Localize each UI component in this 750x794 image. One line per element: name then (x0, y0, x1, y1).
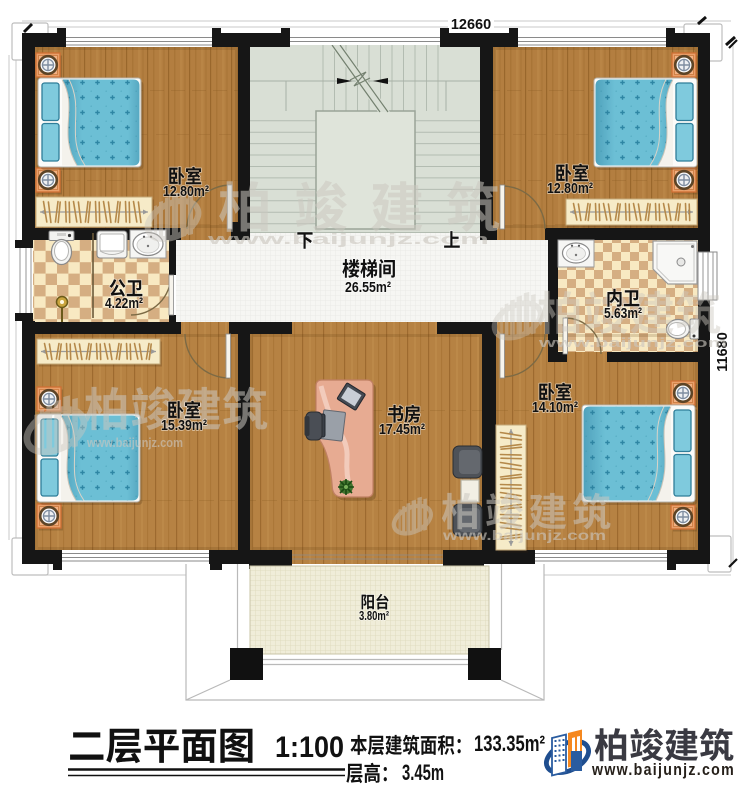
svg-text:15.39m²: 15.39m² (161, 417, 207, 434)
svg-text:12660: 12660 (451, 17, 491, 33)
svg-text:3.80m²: 3.80m² (359, 608, 389, 623)
svg-text:www.baijunjz.com: www.baijunjz.com (86, 435, 183, 450)
svg-text:12.80m²: 12.80m² (163, 183, 209, 200)
svg-text:5.63m²: 5.63m² (604, 305, 642, 322)
svg-text:26.55m²: 26.55m² (345, 279, 391, 296)
svg-text:www.baijunjz.com: www.baijunjz.com (442, 528, 606, 543)
svg-text:www.baijunjz.com: www.baijunjz.com (537, 336, 727, 350)
svg-text:12.80m²: 12.80m² (547, 180, 593, 197)
svg-text:133.35m²: 133.35m² (474, 731, 545, 756)
svg-text:4.22m²: 4.22m² (105, 295, 143, 312)
svg-text:1:100: 1:100 (275, 731, 344, 764)
svg-text:3.45m: 3.45m (402, 760, 444, 785)
svg-text:14.10m²: 14.10m² (532, 399, 578, 416)
svg-text:www.baijunjz.com: www.baijunjz.com (591, 761, 735, 779)
svg-text:17.45m²: 17.45m² (379, 421, 425, 438)
